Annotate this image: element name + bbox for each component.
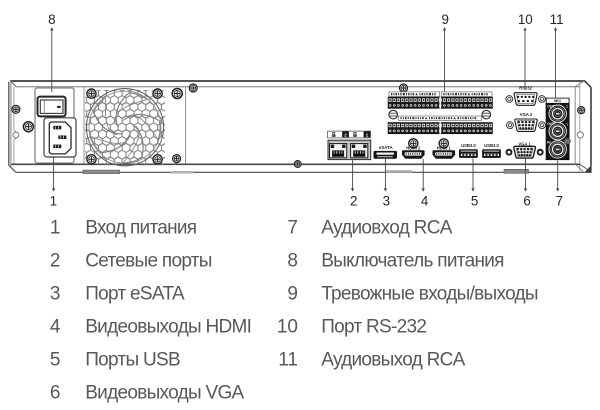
svg-text:4: 4 <box>50 317 61 338</box>
svg-text:USB3.0: USB3.0 <box>484 143 499 148</box>
svg-text:2: 2 <box>350 194 357 209</box>
svg-text:6: 6 <box>523 194 530 209</box>
svg-text:IN: IN <box>547 140 551 144</box>
svg-text:9: 9 <box>287 284 298 305</box>
svg-text:Выключатель питания: Выключатель питания <box>321 251 504 272</box>
svg-text:1: 1 <box>50 194 57 209</box>
svg-text:VGA 1: VGA 1 <box>518 141 531 146</box>
svg-text:5: 5 <box>471 194 478 209</box>
svg-text:11: 11 <box>278 350 298 371</box>
svg-text:eSATA: eSATA <box>379 145 394 150</box>
svg-text:Видеовыходы HDMI: Видеовыходы HDMI <box>85 317 251 338</box>
svg-text:2: 2 <box>50 251 61 272</box>
svg-text:8: 8 <box>287 251 298 272</box>
svg-text:1: 1 <box>566 122 568 126</box>
svg-text:1: 1 <box>50 218 61 239</box>
svg-text:Тревожные входы/выходы: Тревожные входы/выходы <box>321 284 538 305</box>
svg-text:MIC: MIC <box>554 98 561 103</box>
svg-text:OUT: OUT <box>547 122 555 126</box>
svg-text:3: 3 <box>50 284 61 305</box>
svg-text:7: 7 <box>287 218 298 239</box>
svg-text:2: 2 <box>566 105 568 109</box>
svg-text:OUT: OUT <box>547 105 555 109</box>
svg-text:Сетевые порты: Сетевые порты <box>85 251 212 272</box>
svg-text:11: 11 <box>550 12 564 27</box>
svg-text:Аудиовход RCA: Аудиовход RCA <box>321 218 453 239</box>
svg-text:Порт eSATA: Порт eSATA <box>85 284 185 305</box>
svg-text:6: 6 <box>50 383 61 404</box>
svg-text:Порты USB: Порты USB <box>85 350 180 371</box>
svg-text:1: 1 <box>366 133 369 138</box>
svg-text:7: 7 <box>556 194 563 209</box>
svg-text:Вход питания: Вход питания <box>85 218 196 239</box>
svg-text:HDMI 2: HDMI 2 <box>406 146 421 151</box>
svg-text:5: 5 <box>50 350 61 371</box>
svg-text:4: 4 <box>421 194 429 209</box>
svg-text:Видеовыходы VGA: Видеовыходы VGA <box>85 383 244 404</box>
svg-text:USB3.0: USB3.0 <box>461 143 476 148</box>
svg-text:10: 10 <box>518 12 533 27</box>
svg-text:VGA 2: VGA 2 <box>520 112 533 117</box>
svg-text:10: 10 <box>277 317 298 338</box>
svg-text:2: 2 <box>344 133 347 138</box>
svg-text:9: 9 <box>441 12 448 27</box>
svg-text:3: 3 <box>383 194 390 209</box>
svg-text:HDMI 1: HDMI 1 <box>437 146 452 151</box>
svg-text:RS232: RS232 <box>519 86 532 91</box>
svg-text:Аудиовыход RCA: Аудиовыход RCA <box>321 350 465 371</box>
svg-text:8: 8 <box>48 12 55 27</box>
svg-text:Порт RS-232: Порт RS-232 <box>321 317 426 338</box>
